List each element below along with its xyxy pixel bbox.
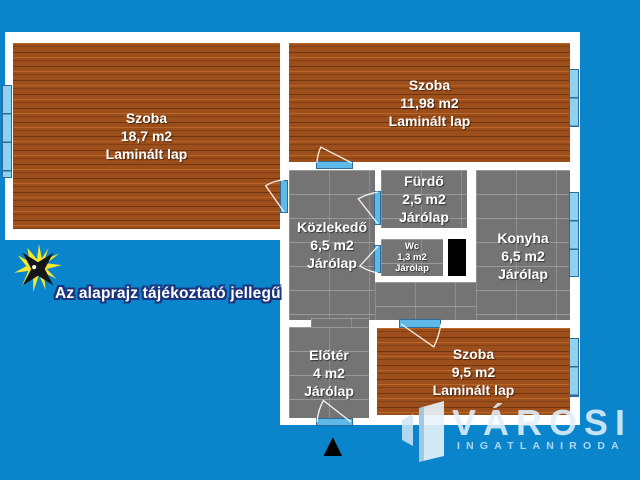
room-area: 11,98 m2 — [389, 94, 471, 112]
room-area: 9,5 m2 — [433, 363, 515, 381]
room-konyha: Konyha 6,5 m2 Járólap — [476, 170, 570, 320]
room-name: Előtér — [304, 346, 354, 364]
room-label: Előtér 4 m2 Járólap — [304, 346, 354, 400]
room-area: 4 m2 — [304, 364, 354, 382]
room-floor-type: Járólap — [395, 263, 429, 274]
room-name: Szoba — [106, 109, 188, 127]
room-name: Fürdő — [399, 172, 449, 190]
door-icon — [316, 418, 353, 426]
passage-to-kitchen — [375, 282, 476, 320]
room-floor-type: Járólap — [399, 208, 449, 226]
room-floor-type: Járólap — [497, 265, 548, 283]
room-floor-type: Járólap — [304, 382, 354, 400]
door-icon — [399, 319, 441, 328]
room-label: Közlekedő 6,5 m2 Járólap — [297, 218, 367, 272]
room-area: 6,5 m2 — [297, 236, 367, 254]
room-area: 1,3 m2 — [395, 252, 429, 263]
window-icon — [569, 192, 579, 277]
room-area: 18,7 m2 — [106, 127, 188, 145]
room-name: Közlekedő — [297, 218, 367, 236]
buildings-icon — [400, 398, 448, 464]
room-name: Wc — [395, 241, 429, 252]
room-label: Szoba 18,7 m2 Laminált lap — [106, 109, 188, 163]
door-icon — [374, 245, 381, 273]
utility-shaft — [448, 239, 466, 276]
room-floor-type: Laminált lap — [389, 112, 471, 130]
room-szoba-11-98: Szoba 11,98 m2 Laminált lap — [289, 43, 570, 162]
room-label: Fürdő 2,5 m2 Járólap — [399, 172, 449, 226]
room-label: Szoba 11,98 m2 Laminált lap — [389, 76, 471, 130]
room-kozlekedo: Közlekedő 6,5 m2 Járólap — [289, 170, 375, 320]
room-label: Konyha 6,5 m2 Járólap — [497, 229, 548, 283]
door-icon — [374, 191, 381, 225]
room-floor-type: Laminált lap — [106, 145, 188, 163]
room-name: Szoba — [389, 76, 471, 94]
room-name: Szoba — [433, 345, 515, 363]
disclaimer-text: Az alaprajz tájékoztató jellegű — [55, 285, 281, 303]
room-wc: Wc 1,3 m2 Járólap — [381, 239, 443, 276]
tagline-text: INGATLANIRODA — [457, 440, 625, 452]
room-szoba-18-7: Szoba 18,7 m2 Laminált lap — [13, 43, 280, 229]
door-icon — [316, 161, 353, 169]
room-floor-type: Járólap — [297, 254, 367, 272]
room-furdo: Fürdő 2,5 m2 Járólap — [381, 170, 467, 228]
room-label: Wc 1,3 m2 Járólap — [395, 241, 429, 274]
floor-plan-canvas: Szoba 18,7 m2 Laminált lap Szoba 11,98 m… — [0, 0, 640, 480]
room-area: 2,5 m2 — [399, 190, 449, 208]
brand-text: VÁROSI — [452, 402, 632, 444]
room-name: Konyha — [497, 229, 548, 247]
window-icon — [569, 69, 579, 127]
window-icon — [2, 85, 12, 178]
watermark-logo: VÁROSI INGATLANIRODA — [400, 396, 640, 466]
door-icon — [280, 180, 288, 213]
window-icon — [569, 338, 579, 397]
room-label: Szoba 9,5 m2 Laminált lap — [433, 345, 515, 399]
north-arrow-icon: ▲ — [317, 428, 349, 462]
room-area: 6,5 m2 — [497, 247, 548, 265]
room-eloter: Előtér 4 m2 Járólap — [289, 327, 369, 418]
